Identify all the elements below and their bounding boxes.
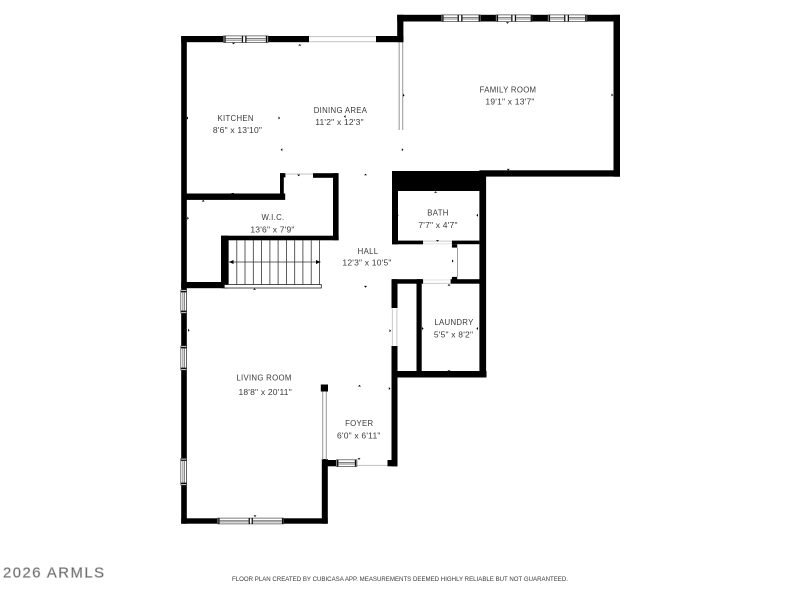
svg-text:18'8" x 20'11": 18'8" x 20'11" (238, 387, 292, 397)
svg-text:12'3" x 10'5": 12'3" x 10'5" (342, 258, 391, 268)
svg-text:W.I.C.: W.I.C. (261, 213, 284, 222)
svg-text:8'6" x 13'10": 8'6" x 13'10" (213, 125, 262, 135)
svg-text:5'5" x 8'2": 5'5" x 8'2" (434, 329, 473, 339)
svg-text:7'7" x 4'7": 7'7" x 4'7" (418, 220, 457, 230)
svg-text:11'2" x 12'3": 11'2" x 12'3" (315, 117, 364, 127)
svg-text:FOYER: FOYER (345, 419, 373, 428)
svg-text:KITCHEN: KITCHEN (218, 114, 254, 123)
svg-text:LIVING ROOM: LIVING ROOM (236, 374, 291, 383)
svg-text:LAUNDRY: LAUNDRY (434, 318, 474, 327)
svg-text:FAMILY ROOM: FAMILY ROOM (480, 85, 537, 94)
svg-text:DINING AREA: DINING AREA (314, 106, 368, 115)
svg-text:13'6" x 7'9": 13'6" x 7'9" (250, 224, 294, 234)
svg-text:FLOOR PLAN CREATED BY CUBICASA: FLOOR PLAN CREATED BY CUBICASA APP. MEAS… (232, 576, 568, 583)
svg-text:2026 ARMLS: 2026 ARMLS (3, 566, 104, 582)
svg-text:6'0" x 6'11": 6'0" x 6'11" (337, 430, 381, 440)
svg-text:HALL: HALL (358, 247, 379, 256)
svg-text:19'1" x 13'7": 19'1" x 13'7" (485, 96, 534, 106)
svg-text:BATH: BATH (427, 208, 448, 217)
